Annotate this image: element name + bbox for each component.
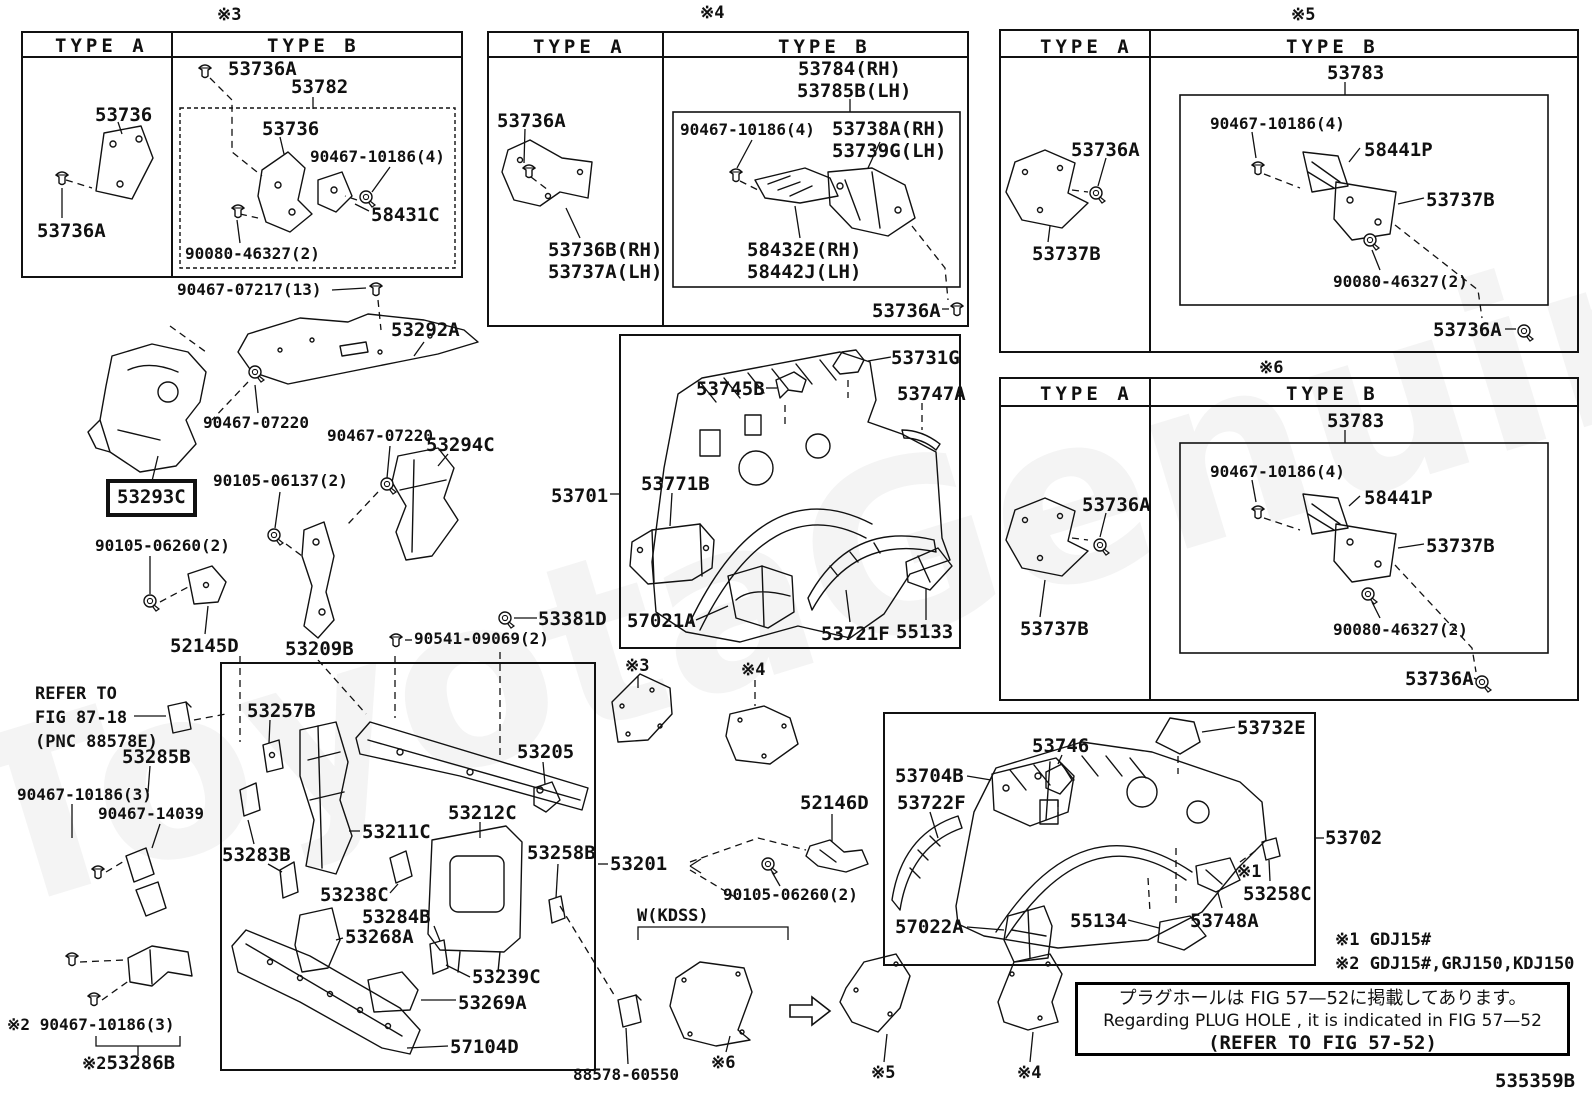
part-label-90080-46327: 90080-46327(2)	[185, 245, 320, 263]
part-label-90467-10186: 90467-10186(4)	[310, 148, 445, 166]
x5-type-a-header: TYPE A	[1040, 37, 1133, 59]
note-marker-x1: ※1	[1237, 863, 1261, 883]
sketch-bracket-53294c	[348, 448, 458, 560]
clip-icon	[199, 65, 211, 78]
clip-icon	[66, 953, 78, 966]
bolt-icon	[762, 858, 777, 874]
parts-diagram-page: ToyotaGenuine.ru	[0, 0, 1592, 1099]
part-label-53737b: 53737B	[1020, 619, 1089, 641]
part-label-58432e-rh: 58432E(RH)	[747, 240, 861, 262]
part-label-53748a: 53748A	[1190, 911, 1259, 933]
part-label-90467-07220: 90467-07220	[327, 427, 433, 445]
part-label-52146d: 52146D	[800, 793, 869, 815]
x2-marker: ※2	[82, 1054, 106, 1074]
part-label-53746: 53746	[1032, 736, 1089, 758]
part-label-53736a: 53736A	[1433, 320, 1502, 342]
part-label-55134: 55134	[1070, 911, 1127, 933]
part-label-53736a: 53736A	[228, 59, 297, 81]
gusset-marker-x4: ※4	[741, 661, 765, 681]
x3-type-a-header: TYPE A	[55, 36, 148, 58]
section-marker-x4: ※4	[700, 4, 724, 24]
part-label-90541-09069: 90541-09069(2)	[414, 630, 549, 648]
part-label-57104d: 57104D	[450, 1037, 519, 1059]
x6-type-b-header: TYPE B	[1286, 384, 1379, 406]
x6-type-a-header: TYPE A	[1040, 384, 1133, 406]
figure-code: 535359B	[1495, 1071, 1575, 1093]
part-label-90467-10186-3: 90467-10186(3)	[17, 786, 152, 804]
part-label-53737b: 53737B	[1426, 190, 1495, 212]
part-label-90080-46327: 90080-46327(2)	[1333, 273, 1468, 291]
sketch-apron-53293c	[88, 326, 248, 481]
part-label-53736a: 53736A	[497, 111, 566, 133]
clip-icon	[88, 993, 100, 1006]
part-label-58441p: 58441P	[1364, 488, 1433, 510]
part-label-53731g: 53731G	[891, 348, 960, 370]
bolt-icon	[1362, 588, 1377, 604]
plug-hole-note-box: プラグホールは FIG 57—52に掲載してあります。 Regarding PL…	[1075, 982, 1570, 1056]
part-label-53722f: 53722F	[897, 793, 966, 815]
part-label-90467-10186: 90467-10186(4)	[1210, 115, 1345, 133]
part-label-53745b: 53745B	[696, 379, 765, 401]
part-label-53211c: 53211C	[362, 822, 431, 844]
part-label-90467-07217: 90467-07217(13)	[177, 281, 322, 299]
part-label-53747a: 53747A	[897, 384, 966, 406]
x3-type-b-header: TYPE B	[267, 36, 360, 58]
refer-note-line1: REFER TO	[35, 685, 117, 705]
part-label-90105-06137: 90105-06137(2)	[213, 472, 348, 490]
sketch-left-fasteners	[144, 366, 537, 647]
part-label-53701: 53701	[551, 486, 608, 508]
part-label-58431c: 58431C	[371, 205, 440, 227]
gusset-marker-x4: ※4	[1017, 1064, 1041, 1084]
plug-hole-note-ref: (REFER TO FIG 57-52)	[1208, 1032, 1437, 1054]
part-label-88578-60550: 88578-60550	[573, 1066, 679, 1084]
clip-icon	[232, 205, 244, 218]
part-label-53736b-rh: 53736B(RH)	[548, 240, 662, 262]
part-label-53736a: 53736A	[1082, 495, 1151, 517]
part-label-53209b: 53209B	[285, 639, 354, 661]
clip-icon	[56, 172, 68, 185]
part-label-53738a-rh: 53738A(RH)	[832, 119, 946, 141]
clip-icon	[390, 634, 402, 647]
bolt-icon	[249, 366, 264, 382]
part-label-53736a: 53736A	[872, 301, 941, 323]
part-label-53205: 53205	[517, 742, 574, 764]
part-label-53257b: 53257B	[247, 701, 316, 723]
sketch-gusset-panels	[612, 674, 1062, 1062]
x4-type-a-header: TYPE A	[533, 37, 626, 59]
bolt-icon	[1094, 539, 1109, 555]
part-label-53784-rh: 53784(RH)	[798, 59, 901, 81]
part-label-x2-53286b: ※253286B	[82, 1053, 175, 1075]
clip-icon	[92, 866, 104, 879]
part-label-52145d: 52145D	[170, 636, 239, 658]
bolt-icon	[268, 529, 283, 545]
part-label-53239c: 53239C	[472, 967, 541, 989]
bolt-icon	[499, 612, 514, 628]
x4-type-b-header: TYPE B	[778, 37, 871, 59]
clip-icon	[1252, 162, 1264, 175]
x5-type-b-header: TYPE B	[1286, 37, 1379, 59]
part-label-53381d: 53381D	[538, 609, 607, 631]
bolt-icon	[1476, 676, 1491, 692]
section-marker-x6: ※6	[1259, 359, 1283, 379]
part-label-53736: 53736	[262, 119, 319, 141]
clip-icon	[1252, 506, 1264, 519]
sketch-kdss-area	[560, 814, 868, 1064]
section-marker-x3: ※3	[217, 6, 241, 26]
plug-hole-note-en: Regarding PLUG HOLE , it is indicated in…	[1103, 1011, 1542, 1031]
clip-icon	[730, 169, 742, 182]
part-label-53702: 53702	[1325, 828, 1382, 850]
part-label-57021a: 57021A	[627, 611, 696, 633]
part-label-53736a: 53736A	[1405, 669, 1474, 691]
part-label-53737b: 53737B	[1426, 536, 1495, 558]
part-label-53704b: 53704B	[895, 766, 964, 788]
bolt-icon	[1518, 325, 1533, 341]
selected-part-label-53293c[interactable]: 53293C	[106, 479, 197, 517]
part-label-53258c: 53258C	[1243, 884, 1312, 906]
clip-icon	[951, 303, 963, 316]
part-label-90080-46327: 90080-46327(2)	[1333, 621, 1468, 639]
part-label-53732e: 53732E	[1237, 718, 1306, 740]
part-label-53294c: 53294C	[426, 435, 495, 457]
part-label-90467-10186: 90467-10186(4)	[680, 121, 815, 139]
refer-note-line2: FIG 87-18	[35, 709, 127, 729]
part-label-58441p: 58441P	[1364, 140, 1433, 162]
part-label-53737a-lh: 53737A(LH)	[548, 262, 662, 284]
part-label-90105-06260: 90105-06260(2)	[95, 537, 230, 555]
part-label-53782: 53782	[291, 77, 348, 99]
part-label-58442j-lh: 58442J(LH)	[747, 262, 861, 284]
x2-marker: ※2	[7, 1015, 30, 1034]
part-label-53785b-lh: 53785B(LH)	[797, 81, 911, 103]
part-label-53721f: 53721F	[821, 624, 890, 646]
part-label-90467-10186: 90467-10186(4)	[1210, 463, 1345, 481]
part-label-53736a: 53736A	[37, 221, 106, 243]
kdss-label: W(KDSS)	[637, 907, 709, 927]
part-label-53212c: 53212C	[448, 803, 517, 825]
part-label-53736a: 53736A	[1071, 140, 1140, 162]
part-label-53283b: 53283B	[222, 845, 291, 867]
gusset-marker-x3: ※3	[625, 657, 649, 677]
part-label-53269a: 53269A	[458, 993, 527, 1015]
part-label-53285b: 53285B	[122, 747, 191, 769]
part-label-90467-14039: 90467-14039	[98, 805, 204, 823]
part-label-90467-07220: 90467-07220	[203, 414, 309, 432]
footnote-x2: ※2 GDJ15#,GRJ150,KDJ150	[1335, 955, 1574, 975]
part-label-53201: 53201	[610, 854, 667, 876]
part-number: 90467-10186(3)	[40, 1015, 175, 1034]
part-number: 53286B	[106, 1052, 175, 1074]
part-label-55133: 55133	[896, 622, 953, 644]
part-label-53258b: 53258B	[527, 843, 596, 865]
part-label-53783: 53783	[1327, 63, 1384, 85]
part-label-53737b: 53737B	[1032, 244, 1101, 266]
plug-hole-note-jp: プラグホールは FIG 57—52に掲載してあります。	[1119, 984, 1527, 1010]
part-label-53238c: 53238C	[320, 885, 389, 907]
bolt-icon	[144, 595, 159, 611]
part-label-53783: 53783	[1327, 411, 1384, 433]
part-label-53736: 53736	[95, 105, 152, 127]
part-label-53771b: 53771B	[641, 474, 710, 496]
clip-icon	[370, 283, 382, 296]
part-label-57022a: 57022A	[895, 917, 964, 939]
footnote-x1: ※1 GDJ15#	[1335, 931, 1431, 951]
part-label-90105-06260: 90105-06260(2)	[723, 886, 858, 904]
sketch-radiator-support	[232, 720, 588, 1054]
part-label-53268a: 53268A	[345, 927, 414, 949]
part-label-x2-90467-10186-3: ※2 90467-10186(3)	[7, 1016, 175, 1034]
part-label-53739g-lh: 53739G(LH)	[832, 141, 946, 163]
bolt-icon	[1090, 187, 1105, 203]
section-marker-x5: ※5	[1291, 6, 1315, 26]
gusset-marker-x5: ※5	[871, 1064, 895, 1084]
part-label-53292a: 53292A	[391, 320, 460, 342]
gusset-marker-x6: ※6	[711, 1054, 735, 1074]
clip-icon	[523, 165, 535, 178]
